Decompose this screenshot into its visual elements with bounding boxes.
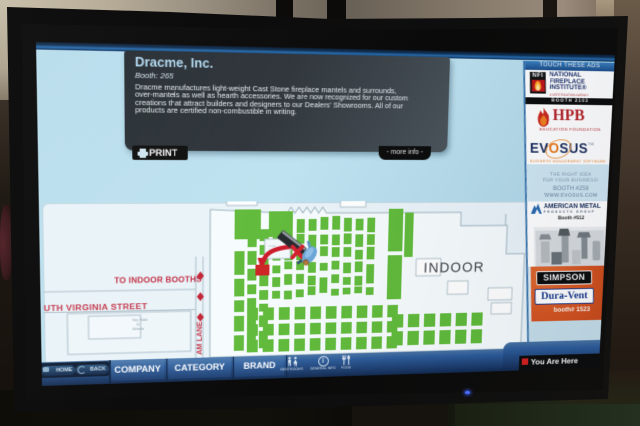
svg-text:AM LANE: AM LANE	[195, 321, 203, 355]
svg-text:Sky Walk: Sky Walk	[132, 317, 147, 322]
svg-text:INDOOR: INDOOR	[423, 260, 484, 276]
svg-text:TO INDOOR BOOTHS: TO INDOOR BOOTHS	[114, 275, 201, 285]
svg-text:Atlanta: Atlanta	[132, 326, 144, 331]
svg-text:SOUTH VIRGINIA STREET: SOUTH VIRGINIA STREET	[42, 302, 147, 313]
